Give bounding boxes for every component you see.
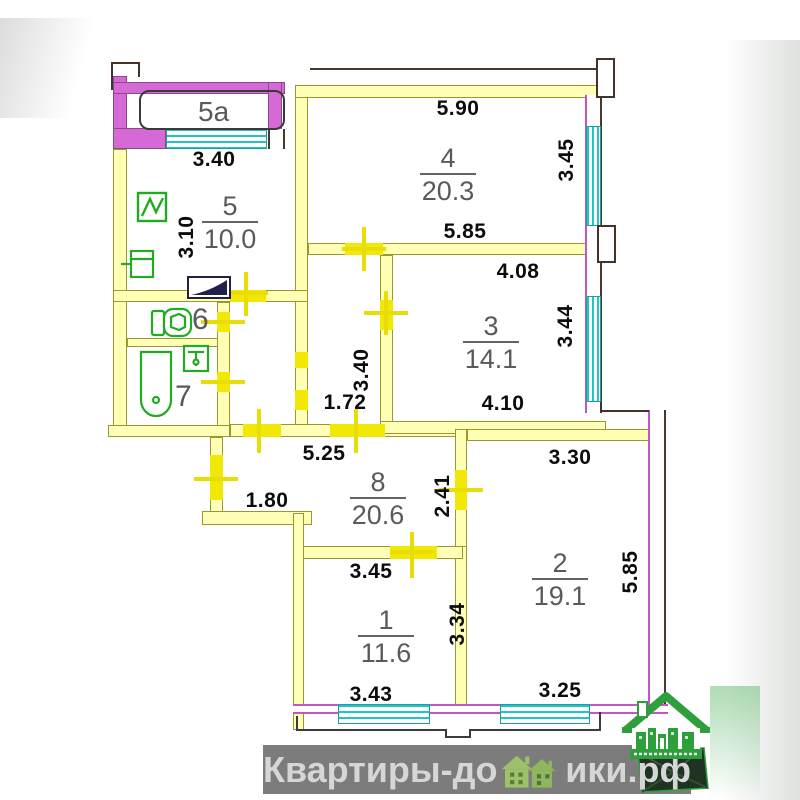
fraction-line (532, 578, 588, 580)
room-number: 2 (525, 549, 595, 577)
door-tick (194, 477, 238, 481)
room-label-3: 3 14.1 (456, 312, 526, 374)
fraction-line (358, 635, 414, 637)
room-label-bath: 7 (175, 382, 192, 412)
dim-hall-top: 5.25 (303, 442, 346, 466)
dim-hall-left: 1.80 (246, 489, 289, 513)
dim-room1-top: 3.45 (350, 560, 393, 584)
room-label-1: 1 11.6 (351, 606, 421, 668)
balcony-sill (113, 128, 166, 149)
dim-room1-right: 3.34 (446, 603, 470, 646)
dim-room3-right: 3.44 (554, 305, 578, 348)
room-label-4: 4 20.3 (413, 144, 483, 206)
room-area: 19.1 (525, 582, 595, 610)
sink-icon (184, 346, 208, 371)
dim-corridor-width: 1.72 (324, 391, 367, 415)
room-area: 11.6 (351, 639, 421, 667)
dim-room2-bottom: 3.25 (539, 679, 582, 703)
door-tick (354, 409, 358, 453)
dim-hall-right: 2.41 (431, 475, 455, 518)
wall-room3-left (380, 255, 393, 425)
scan-tint-green (710, 686, 760, 800)
dim-room3-top: 4.08 (497, 260, 540, 284)
room-label-hall: 8 20.6 (343, 468, 413, 530)
fraction-line (350, 497, 406, 499)
watermark-text: Квартиры-до ики.рф (263, 745, 691, 794)
room-number: 4 (413, 144, 483, 172)
opening-corridor-b (295, 390, 308, 410)
room-label-wc: 6 (192, 305, 209, 335)
step-right (601, 403, 649, 411)
dim-room4-bottom: 5.85 (444, 220, 487, 244)
wall-kitchen-right (295, 97, 308, 427)
wall-kitchen-bottom (113, 290, 308, 302)
wall-room1-left (293, 513, 304, 730)
dim-room2-right: 5.85 (619, 551, 643, 594)
dim-corridor-len: 3.40 (350, 349, 374, 392)
toilet-icon (152, 309, 191, 336)
room-label-2: 2 19.1 (525, 549, 595, 611)
dim-balcony-width: 3.40 (193, 148, 236, 172)
fraction-line (420, 173, 476, 175)
fraction-line (202, 221, 258, 223)
scan-shadow-topleft (0, 18, 110, 118)
door-tick (342, 247, 386, 251)
dim-room4-right: 3.45 (555, 139, 579, 182)
door-tick (224, 291, 268, 295)
bathtub-icon (141, 352, 171, 416)
room-label-balcony: 5a (198, 98, 229, 126)
wall-room2-top (467, 429, 653, 441)
balcony-window (166, 128, 267, 149)
room-area: 20.3 (413, 177, 483, 205)
door-tick (201, 380, 245, 384)
wall-room1-top (303, 546, 463, 559)
wall-exterior-right-lower (648, 410, 666, 708)
stove-icon (138, 193, 166, 221)
balcony-wall-top (113, 82, 285, 94)
room-number: 1 (351, 606, 421, 634)
dim-room1-bottom: 3.43 (350, 683, 393, 707)
balcony-wall-right (268, 82, 282, 132)
watermark-text-after: ики.рф (565, 749, 691, 791)
scan-shadow-right (724, 40, 800, 800)
dim-room2-top: 3.30 (549, 446, 592, 470)
opening-hall-a (243, 424, 281, 437)
room-number: 8 (343, 468, 413, 496)
door-tick (390, 550, 434, 554)
window-room2 (500, 704, 590, 724)
window-room1 (338, 704, 430, 724)
watermark-houses-icon (500, 747, 564, 793)
floorplan-image: 3.40 3.10 5.90 3.45 5.85 4.08 3.44 4.10 … (0, 0, 800, 800)
door-tick (257, 409, 261, 453)
dim-room3-bottom: 4.10 (482, 392, 525, 416)
room-number: 3 (456, 312, 526, 340)
opening-corridor-a (295, 352, 308, 368)
room-area: 20.6 (343, 501, 413, 529)
watermark-text-before: Квартиры-до (263, 749, 498, 791)
window-room4 (586, 126, 601, 226)
top-outline (310, 68, 598, 70)
balcony-door-gap (268, 129, 285, 149)
room-label-kitchen: 5 10.0 (195, 192, 265, 254)
door-tick (410, 532, 414, 578)
room-area: 14.1 (456, 345, 526, 373)
wall-wc-bath-divider (127, 338, 218, 347)
door-tick (364, 311, 408, 315)
dim-room4-top: 5.90 (437, 97, 480, 121)
wall-block-bottom (108, 425, 230, 437)
room-number: 5 (195, 192, 265, 220)
room-area: 10.0 (195, 225, 265, 253)
window-room3 (586, 296, 601, 402)
fraction-line (463, 341, 519, 343)
